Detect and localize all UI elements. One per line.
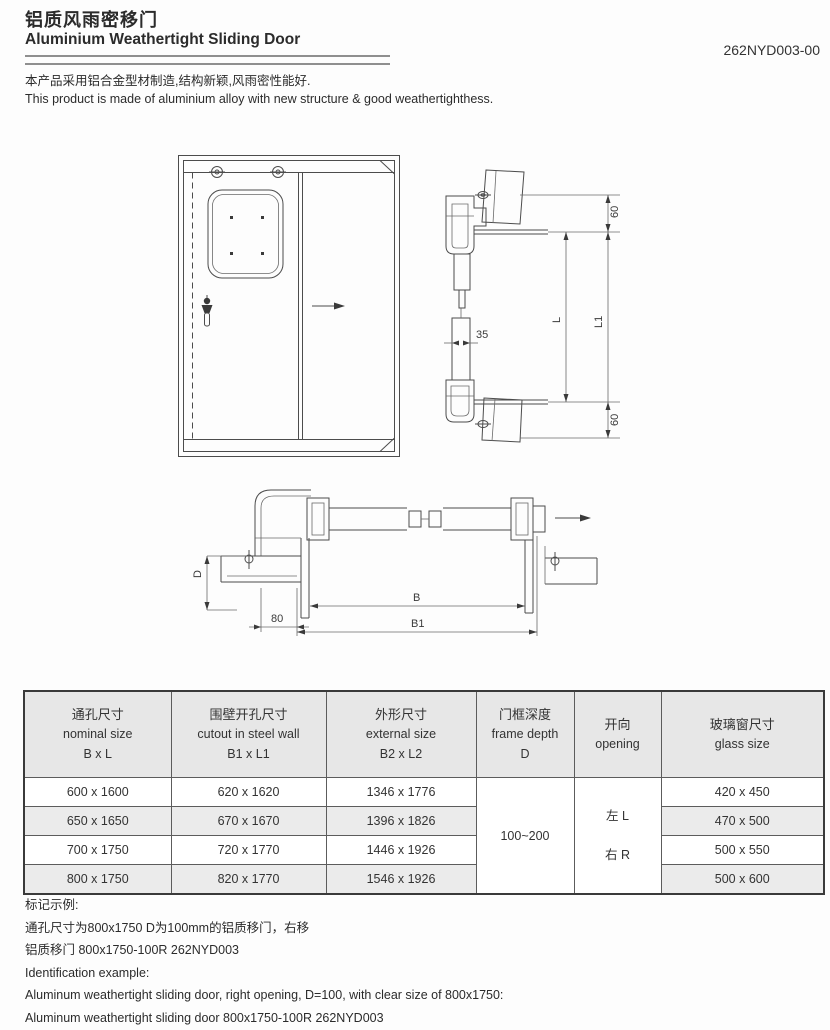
cell-cutout: 720 x 1770 [171,836,326,865]
lower-wall-plate [475,398,522,442]
svg-text:60: 60 [609,414,621,426]
cell-nominal: 600 x 1600 [24,778,171,807]
vertical-section-drawing: 35 [438,158,633,446]
title-double-rule [25,55,390,65]
cell-opening: 左 L 右 R [574,778,661,895]
specification-table: 通孔尺寸 nominal size B x L 围壁开孔尺寸 cutout in… [23,690,825,895]
slide-direction-arrow [312,303,345,310]
mark-example-line2-en: Aluminum weathertight sliding door 800x1… [25,1007,503,1030]
product-description-chinese: 本产品采用铝合金型材制造,结构新颖,风雨密性能好. [25,70,310,89]
door-panel-plan [307,498,545,540]
drawing-number: 262NYD003-00 [670,42,820,58]
bottom-frame-profile [446,380,548,422]
cell-nominal: 650 x 1650 [24,807,171,836]
cell-nominal: 700 x 1750 [24,836,171,865]
cell-cutout: 820 x 1770 [171,865,326,895]
cell-external: 1346 x 1776 [326,778,476,807]
svg-text:B: B [413,592,420,604]
top-frame-profile [446,196,548,254]
dim-80: 80 [249,588,309,636]
mark-example-title-zh: 标记示例: [25,894,503,917]
cell-external: 1546 x 1926 [326,865,476,895]
col-header-frame-depth: 门框深度 frame depth D [476,691,574,778]
cell-cutout: 620 x 1620 [171,778,326,807]
col-header-nominal-size: 通孔尺寸 nominal size B x L [24,691,171,778]
mark-example-title-en: Identification example: [25,962,503,985]
col-header-opening: 开向 opening [574,691,661,778]
left-frame-profile [255,490,311,618]
dim-35: 35 [444,329,488,346]
cell-glass: 420 x 450 [661,778,824,807]
col-header-cutout: 围壁开孔尺寸 cutout in steel wall B1 x L1 [171,691,326,778]
page-title-chinese: 铝质风雨密移门 [25,6,158,32]
cell-cutout: 670 x 1670 [171,807,326,836]
mark-example-line1-zh: 通孔尺寸为800x1750 D为100mm的铝质移门，右移 [25,917,503,940]
door-window [208,190,283,278]
product-description-english: This product is made of aluminium alloy … [25,92,493,106]
svg-text:80: 80 [271,613,283,625]
door-handle [202,295,213,326]
table-row: 650 x 1650 670 x 1670 1396 x 1826 470 x … [24,807,824,836]
dim-B: B [310,592,525,609]
page-title-english: Aluminium Weathertight Sliding Door [25,31,300,49]
horizontal-section-drawing: D 80 B [193,478,605,650]
slide-direction-arrow-plan [555,515,591,522]
upper-wall-plate [475,170,524,224]
table-header-row: 通孔尺寸 nominal size B x L 围壁开孔尺寸 cutout in… [24,691,824,778]
svg-text:60: 60 [609,206,621,218]
cell-glass: 500 x 550 [661,836,824,865]
cell-nominal: 800 x 1750 [24,865,171,895]
table-row: 700 x 1750 720 x 1770 1446 x 1926 500 x … [24,836,824,865]
svg-text:L: L [551,317,563,323]
dim-D: D [193,556,251,610]
dim-60-top: 60 [606,195,622,232]
cell-external: 1396 x 1826 [326,807,476,836]
datasheet-page: 铝质风雨密移门 Aluminium Weathertight Sliding D… [0,0,830,1030]
col-header-glass-size: 玻璃窗尺寸 glass size [661,691,824,778]
dim-L: L [551,232,569,402]
table-row: 600 x 1600 620 x 1620 1346 x 1776 100~20… [24,778,824,807]
mark-example-line2-zh: 铝质移门 800x1750-100R 262NYD003 [25,939,503,962]
cell-external: 1446 x 1926 [326,836,476,865]
right-frame-profile [525,540,597,613]
svg-text:35: 35 [476,329,488,341]
cell-glass: 500 x 600 [661,865,824,895]
door-panel-section [452,254,470,380]
identification-example-block: 标记示例: 通孔尺寸为800x1750 D为100mm的铝质移门，右移 铝质移门… [25,894,503,1029]
door-elevation-drawing [178,155,400,457]
svg-text:B1: B1 [411,618,424,630]
svg-text:L1: L1 [593,316,605,328]
mark-example-line1-en: Aluminum weathertight sliding door, righ… [25,984,503,1007]
svg-text:D: D [193,570,204,578]
table-row: 800 x 1750 820 x 1770 1546 x 1926 500 x … [24,865,824,895]
cell-glass: 470 x 500 [661,807,824,836]
col-header-external-size: 外形尺寸 external size B2 x L2 [326,691,476,778]
cell-frame-depth: 100~200 [476,778,574,895]
dim-B1: B1 [297,536,537,636]
